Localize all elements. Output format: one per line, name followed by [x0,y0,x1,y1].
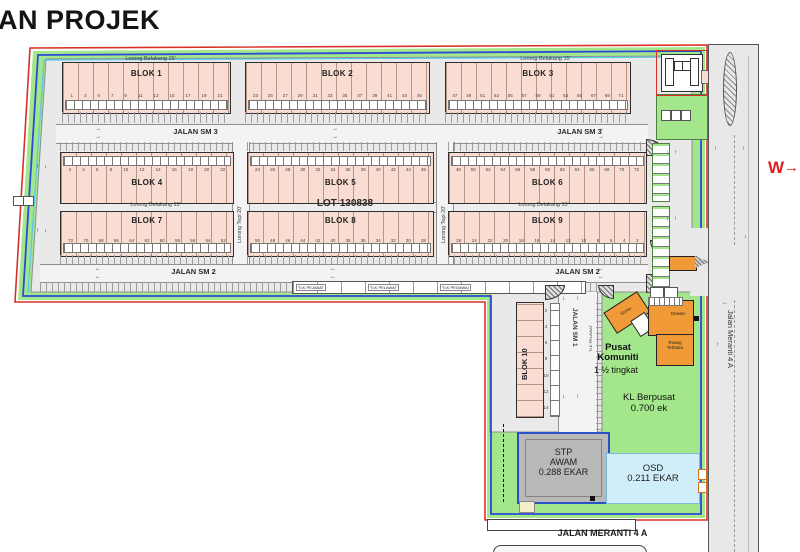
lot-number: 14 [156,167,161,172]
traffic-arrow-icon: ↑ [576,394,579,400]
blok-9: BLOK 9 2624222018161412108642 [448,211,647,257]
lot-number: 45 [417,93,422,98]
lot-number: 13 [154,93,159,98]
ruang-terbuka-building: Ruang Terbuka [656,334,694,366]
blok-6: BLOK 6 48505254565860626466687072 [448,152,647,204]
gate-box [519,501,535,513]
traffic-arrow-icon: ↓ [666,150,669,156]
porch-strip [65,100,228,110]
lot-number: 60 [545,167,550,172]
marker-dot [694,316,699,321]
utility-box [681,110,691,121]
parking-label: TLK PEJABAT [296,284,326,291]
lot-number: 40 [376,167,381,172]
lot-number: 11 [138,93,143,98]
lot-number: 67 [591,93,596,98]
lot-number: 52 [486,167,491,172]
lane-line [748,56,749,552]
lot-number: 57 [522,93,527,98]
lot-number: 61 [549,93,554,98]
lot-numbers: 246810121416182022 [63,167,231,172]
lot-number: 42 [391,167,396,172]
blok-2: BLOK 2 232527293133353739414345 [245,62,430,114]
substation-bay [682,61,691,71]
traffic-arrow-icon: ↓ [44,164,47,170]
traffic-arrow-icon: ← [722,300,728,306]
lot-number: 69 [605,93,610,98]
traffic-arrow-icon: ↑ [714,146,717,152]
block-label: BLOK 3 [446,69,630,78]
lot-number: 64 [575,167,580,172]
lot-number: 46 [421,167,426,172]
traffic-arrow-icon: ↑ [576,296,579,302]
lot-number: 37 [357,93,362,98]
block-label: BLOK 8 [248,216,433,225]
lot-number: 54 [500,167,505,172]
lot-numbers: 48505254565860626466687072 [451,167,644,172]
road-label-jalan-meranti-bottom: JALAN MERANTI 4 A [540,529,665,539]
road-kerb [493,545,647,552]
lot-number: 23 [253,93,258,98]
lot-number: 49 [466,93,471,98]
parking-stubs [40,282,288,292]
compass-west-label: W [768,159,784,178]
lot-number: 66 [590,167,595,172]
lot-number: 4 [545,324,548,329]
lot-number: 19 [202,93,207,98]
lot-numbers: 13579111315171921 [65,93,228,98]
lot-number: 2 [545,308,548,313]
lot-number: 43 [402,93,407,98]
porch-strip [550,303,560,417]
traffic-arrow-icon: → [332,134,338,140]
road-label-lorong-belakang: Lorong Belakang 15' [103,56,198,62]
lot-number: 47 [452,93,457,98]
traffic-arrow-icon: ↑ [36,228,39,234]
porch-strip [448,100,628,110]
traffic-arrow-icon: → [598,134,604,140]
lot-number: 65 [577,93,582,98]
block-label: BLOK 9 [449,216,646,225]
stp-line1: STP [555,447,573,457]
substation-bay [690,58,699,86]
lot-numbers: 232527293133353739414345 [248,93,427,98]
road-label-lorong-belakang: Lorong Belakang 15' [496,202,591,208]
lot-number: 36 [346,167,351,172]
traffic-ar row-icon: ↓ [744,234,747,240]
lot-number: 32 [315,167,320,172]
road-label-lorong-tepi: Lorong Tepi 20' [441,206,447,243]
traffic-arrow-icon: → [332,126,338,132]
traffic-arrow-icon: ↓ [666,216,669,222]
road-label-lorong-belakang: Lorong Belakang 15' [108,202,203,208]
road-label-jalan-meranti: Jalan Meranti 4 A [726,310,734,368]
lot-number: 34 [330,167,335,172]
traffic-arrow-icon: ↑ [716,342,719,348]
porch-strip [63,156,231,166]
traffic-arrow-icon: ← [330,266,336,272]
porch-strip [250,243,431,253]
site-plan-canvas: AN PROJEK W → BLOK 1 13579111315171921 B… [0,0,800,552]
lot-number: 6 [96,167,99,172]
blok-4: BLOK 4 246810121416182022 [60,152,234,204]
lot-number: 18 [188,167,193,172]
traffic-arrow-icon: → [598,126,604,132]
pusat-komuniti-label: Pusat Komuniti [589,343,647,364]
blok-8: BLOK 8 504846444240383634323028 [247,211,434,257]
lot-number: 3 [84,93,87,98]
traffic-arrow-icon: → [95,134,101,140]
lot-number: 20 [204,167,209,172]
boundary-dashed-line [503,424,504,502]
traffic-arrow-icon: ← [95,266,101,272]
traffic-arrow-icon: ↑ [742,146,745,152]
lot-number: 4 [82,167,85,172]
outlet-box [698,482,707,493]
porch-strip [250,156,431,166]
parking-stubs [60,142,232,151]
blok-3: BLOK 3 47495153555759616365676971 [445,62,631,114]
traffic-arrow-icon: ← [598,274,604,280]
lot-number: 6 [545,340,548,345]
lot-number: 28 [285,167,290,172]
lot-number: 22 [220,167,225,172]
lot-number: 68 [604,167,609,172]
lot-number: 56 [515,167,520,172]
lot-number: 38 [361,167,366,172]
parking-stubs [247,255,432,264]
traffic-arrow-icon: ← [598,266,604,272]
traffic-arrow-icon: ↓ [44,228,47,234]
pusat-line1: Pusat [605,342,631,353]
canopy-parking-strip [648,297,683,306]
lot-number: 31 [313,93,318,98]
osd-line1: OSD [643,463,664,474]
lot-numbers: 47495153555759616365676971 [448,93,628,98]
stp-awam-area: STP AWAM 0.288 EKAR [517,432,610,504]
parking-label: TLK PEGAWAI [440,284,471,291]
lot-number: 62 [560,167,565,172]
parking-stubs [448,142,645,151]
lot-number: 53 [494,93,499,98]
lot-number: 1 [70,93,73,98]
lot-number: 26 [270,167,275,172]
ruang-terbuka-label: Ruang Terbuka [660,341,690,351]
lot-number-label: LOT 130838 [300,198,390,209]
lot-number: 44 [406,167,411,172]
utility-box [671,110,681,121]
stp-line3: 0.288 EKAR [539,467,589,477]
lot-number: 24 [255,167,260,172]
lot-number: 21 [217,93,222,98]
block-label: BLOK 7 [61,216,233,225]
guard-house [669,256,697,271]
lot-number: 48 [456,167,461,172]
traffic-arrow-icon: ← [330,274,336,280]
block-label: BLOK 6 [449,178,646,187]
lot-number: 14 [543,405,548,410]
parking-stubs [60,255,232,264]
parking-stubs [448,255,645,264]
parking-label: TLK PELAWAT [368,284,399,291]
road-label-jalan-sm3: JALAN SM 3 [148,128,243,136]
lot-number: 55 [508,93,513,98]
traffic-arrow-icon: ↑ [674,150,677,156]
kl-berpusat-label: KL Berpusat [616,393,682,403]
parking-stubs [445,112,629,123]
lot-numbers: 2468101214 [542,302,550,416]
lot-number: 16 [172,167,177,172]
visitor-parking-strip [292,281,586,294]
compass-arrow-icon: → [784,160,799,177]
lot-number: 35 [342,93,347,98]
lot-number: 72 [634,167,639,172]
osd-area: OSD 0.211 EKAR [606,453,700,504]
blok-5: BLOK 5 242628303234363840424446 [247,152,434,204]
lot-number: 8 [545,356,548,361]
lot-number: 41 [387,93,392,98]
parking-stubs [247,142,432,151]
lot-number: 8 [110,167,113,172]
traffic-arrow-icon: ↑ [36,164,39,170]
pusat-komuniti-storey: 1 ½ tingkat [586,366,646,376]
lot-number: 25 [268,93,273,98]
kl-berpusat-area: 0.700 ek [616,404,682,414]
lot-number: 30 [300,167,305,172]
osd-line2: 0.211 EKAR [627,473,679,484]
lot-number: 12 [139,167,144,172]
dewan-label: Dewan [665,312,691,317]
stp-line2: AWAM [550,457,577,467]
lot-number: 5 [97,93,100,98]
lot-number: 71 [619,93,624,98]
marker-dot [590,496,595,501]
lot-number: 27 [283,93,288,98]
porch-strip [451,156,644,166]
ruang-line2: Terbuka [667,345,683,350]
road-label-jalan-sm2: JALAN SM 2 [530,268,625,276]
porch-strip [451,243,644,253]
road-label-jalan-sm3: JALAN SM 3 [532,128,627,136]
lot-number: 50 [471,167,476,172]
blok-1: BLOK 1 13579111315171921 [62,62,231,114]
lot-number: 17 [186,93,191,98]
lot-number: 59 [535,93,540,98]
lot-number: 58 [530,167,535,172]
utility-box [23,196,34,206]
lot-number: 29 [298,93,303,98]
traffic-arrow-icon: → [95,126,101,132]
lot-number: 70 [619,167,624,172]
block-label: BLOK 4 [61,178,233,187]
block-label: BLOK 2 [246,69,429,78]
osd-label: OSD 0.211 EKAR [607,464,699,485]
outlet-box [698,469,707,480]
lot-number: 10 [123,167,128,172]
utility-box [661,110,671,121]
lot-number: 10 [543,373,548,378]
traffic-arrow-icon: ↑ [674,216,677,222]
traffic-arrow-icon: ↓ [562,394,565,400]
traffic-arrow-icon: ← [95,274,101,280]
median-island [723,52,737,126]
lot-number: 7 [111,93,114,98]
block-label: BLOK 1 [63,69,230,78]
lot-number: 15 [170,93,175,98]
porch-strip [248,100,427,110]
porch-strip [63,243,231,253]
road-label-lorong-belakang: Lorong Belakang 15' [498,56,593,62]
lot-number: 2 [69,167,72,172]
road-label-jalan-sm2: JALAN SM 2 [146,268,241,276]
traffic-arrow-icon: ↓ [562,296,565,302]
pusat-line2: Komuniti [597,352,638,363]
lot-number: 51 [480,93,485,98]
substation-bay [665,58,674,86]
stp-label: STP AWAM 0.288 EKAR [519,448,608,478]
blok-7: BLOK 7 7270686664626058565452 [60,211,234,257]
lot-number: 12 [543,389,548,394]
lot-number: 33 [327,93,332,98]
page-title: AN PROJEK [0,6,160,36]
lot-number: 63 [563,93,568,98]
lot-number: 39 [372,93,377,98]
parking-stubs [62,112,229,123]
block-label: BLOK 10 [521,348,529,380]
road-label-lorong-tepi: Lorong Tepi 20' [237,206,243,243]
block-label: BLOK 5 [248,178,433,187]
lot-numbers: 242628303234363840424446 [250,167,431,172]
lane-line [734,135,735,245]
parking-stubs [245,112,428,123]
road-label-jalan-sm1: JALAN SM 1 [571,308,578,347]
lot-number: 9 [124,93,127,98]
